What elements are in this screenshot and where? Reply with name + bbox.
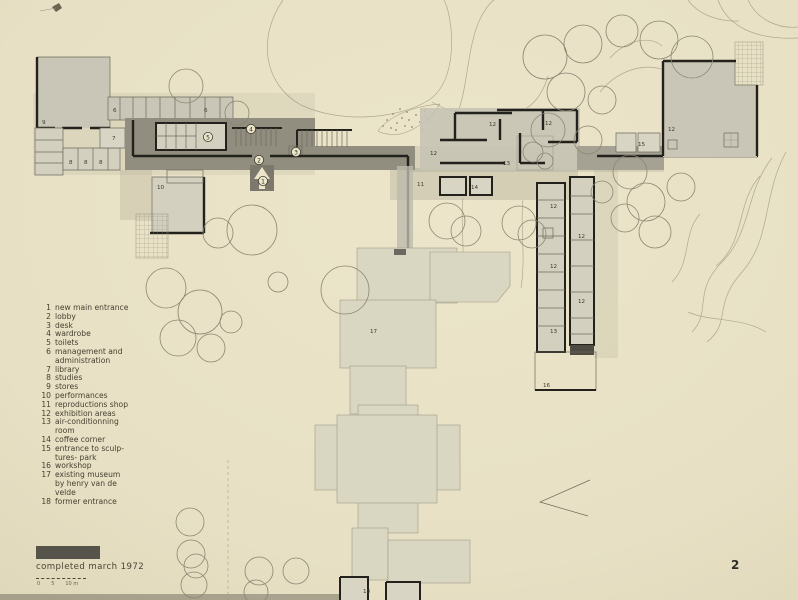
legend-item: 15entrance to sculp- tures- park [40, 445, 160, 463]
svg-text:12: 12 [578, 299, 585, 305]
site-plan-drawing: 9 6 6 7 8 8 8 10 11 12 12 12 13 14 12 12… [0, 0, 798, 600]
svg-text:13: 13 [550, 329, 558, 335]
svg-text:1: 1 [261, 178, 265, 185]
legend-item: 17existing museum by henry van de velde [40, 471, 160, 497]
circled-4: 4 [246, 124, 255, 133]
svg-text:6: 6 [113, 108, 117, 114]
circled-3: 3 [291, 147, 300, 156]
svg-text:7: 7 [112, 136, 116, 142]
rooms-admin-corridor [108, 97, 233, 120]
svg-text:5: 5 [206, 134, 210, 141]
scan-shadow-bottom [0, 594, 345, 600]
scale-bar [36, 578, 86, 579]
svg-text:16: 16 [543, 383, 551, 389]
grid-hatch-terrace [136, 214, 168, 258]
svg-text:4: 4 [249, 126, 253, 133]
legend-item: 18former entrance [40, 498, 160, 507]
legend-item: 13air-conditionning room [40, 418, 160, 436]
scale-tick-labels: 0 5 10 m [37, 581, 78, 587]
page-number: 2 [731, 558, 739, 572]
svg-text:14: 14 [471, 185, 479, 191]
svg-text:12: 12 [668, 127, 675, 133]
circled-5: 5 [203, 132, 212, 141]
redacted-stamp [36, 546, 100, 559]
legend-item: 6management and administration [40, 348, 160, 366]
svg-text:13: 13 [503, 161, 511, 167]
corridor-to-museum [397, 166, 413, 252]
svg-text:9: 9 [42, 120, 46, 126]
exhibition-pinwheel [420, 108, 580, 170]
svg-text:2: 2 [257, 157, 261, 164]
svg-text:8: 8 [69, 160, 73, 166]
building-stores [37, 57, 110, 128]
svg-text:12: 12 [578, 234, 585, 240]
svg-text:12: 12 [550, 204, 557, 210]
svg-text:8: 8 [99, 160, 103, 166]
svg-text:10: 10 [157, 185, 165, 191]
circled-2: 2 [254, 155, 263, 164]
svg-text:12: 12 [550, 264, 557, 270]
legend: 1new main entrance 2lobby 3desk 4wardrob… [40, 304, 160, 506]
svg-text:12: 12 [430, 151, 437, 157]
rooms-coffee-corner [440, 177, 492, 195]
circled-1: 1 [258, 176, 267, 185]
svg-text:17: 17 [370, 329, 378, 335]
svg-text:12: 12 [489, 122, 496, 128]
completion-note: completed march 1972 [36, 562, 144, 572]
svg-text:6: 6 [204, 108, 208, 114]
svg-text:3: 3 [294, 149, 298, 156]
svg-text:11: 11 [417, 182, 425, 188]
svg-text:8: 8 [84, 160, 88, 166]
svg-text:12: 12 [545, 121, 552, 127]
scanned-site-plan-page: 9 6 6 7 8 8 8 10 11 12 12 12 13 14 12 12… [0, 0, 798, 600]
svg-text:15: 15 [638, 142, 646, 148]
svg-text:18: 18 [363, 589, 371, 595]
